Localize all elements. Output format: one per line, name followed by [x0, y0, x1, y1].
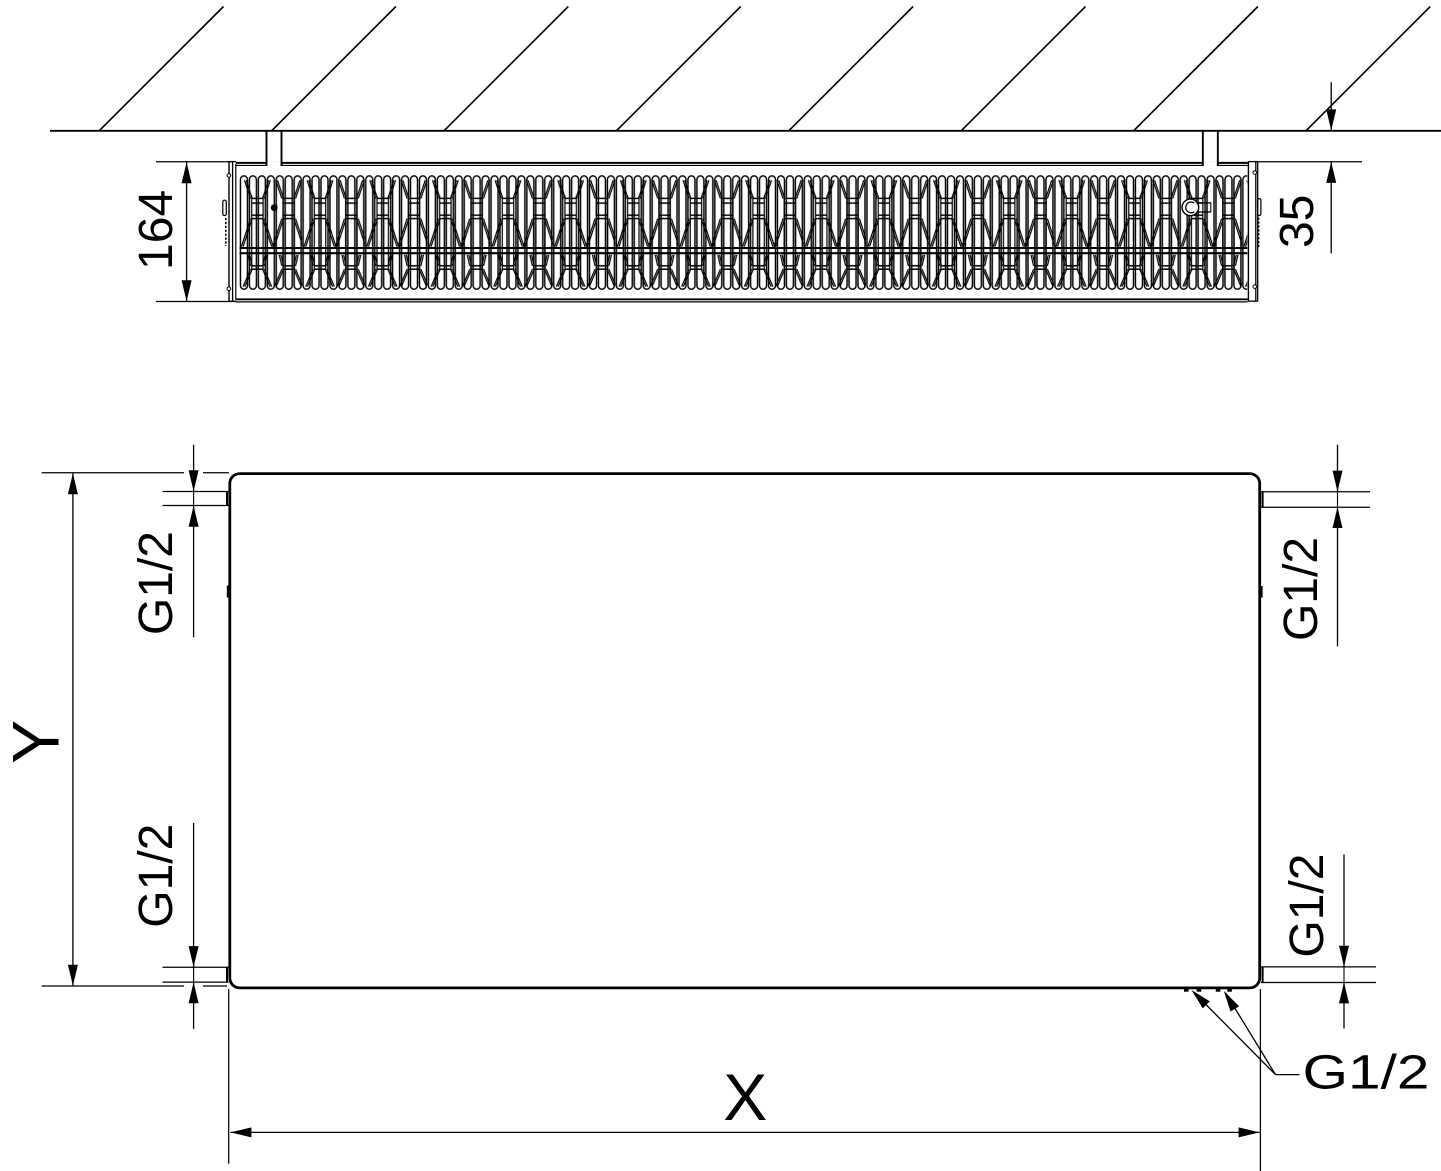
svg-text:G1/2: G1/2 [1281, 854, 1334, 958]
svg-text:G1/2: G1/2 [130, 531, 183, 635]
svg-text:35: 35 [1271, 195, 1324, 248]
svg-text:G1/2: G1/2 [1303, 1046, 1430, 1099]
svg-text:X: X [723, 1060, 767, 1134]
svg-text:164: 164 [130, 190, 183, 270]
svg-text:G1/2: G1/2 [1275, 537, 1328, 641]
svg-text:Y: Y [0, 720, 72, 764]
svg-text:G1/2: G1/2 [130, 824, 183, 928]
